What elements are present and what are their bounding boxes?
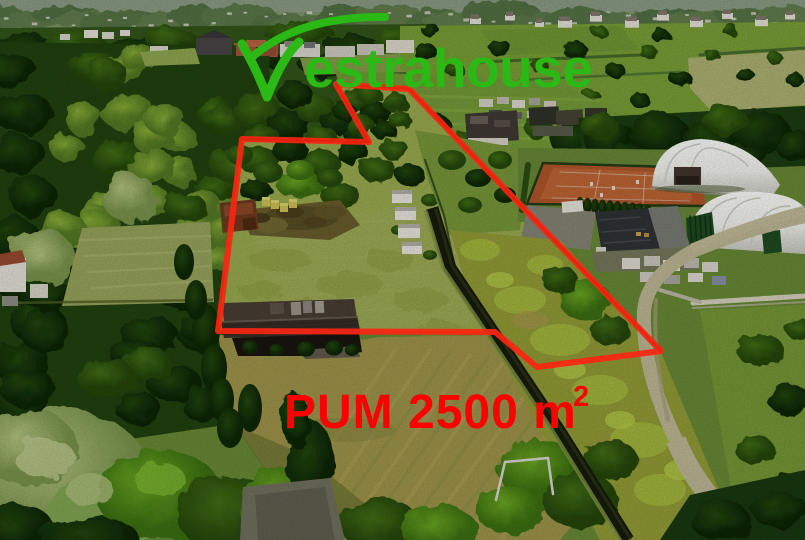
svg-text:estrahouse: estrahouse [304,37,592,99]
svg-text:PUM 2500 m: PUM 2500 m [284,386,577,439]
svg-text:2: 2 [573,381,589,413]
